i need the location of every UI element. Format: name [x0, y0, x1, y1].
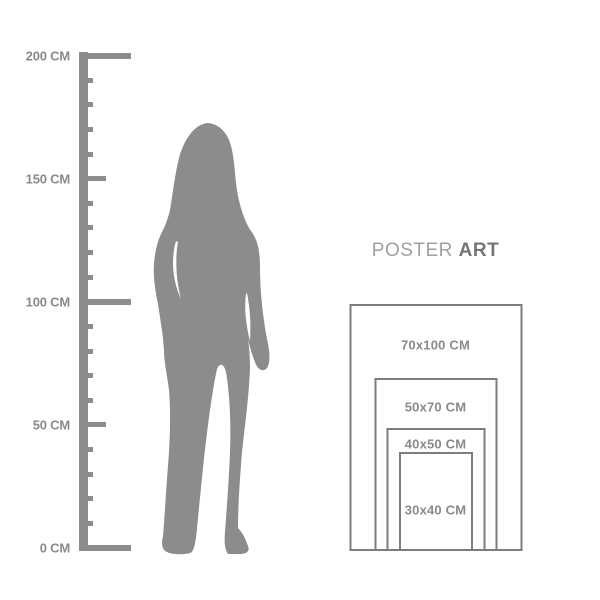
poster-size-label-30x40: 30x40 CM [349, 502, 522, 517]
poster-size-guide: 200 CM150 CM100 CM50 CM0 CM POSTER ART 7… [0, 0, 600, 600]
poster-size-stack: 70x100 CM50x70 CM40x50 CM30x40 CM [349, 304, 522, 551]
woman-silhouette-shape [154, 123, 270, 554]
title-regular: POSTER [372, 240, 453, 261]
poster-size-label-50x70: 50x70 CM [349, 400, 522, 415]
page-title: POSTER ART [349, 241, 522, 261]
poster-size-label-70x100: 70x100 CM [349, 338, 522, 353]
title-bold: ART [459, 240, 500, 261]
poster-size-label-40x50: 40x50 CM [349, 437, 522, 452]
